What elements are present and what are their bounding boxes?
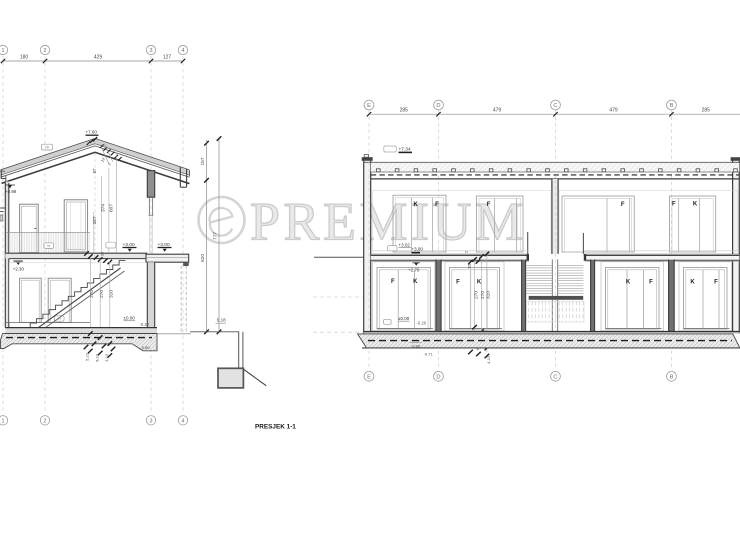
svg-text:285: 285	[702, 108, 711, 114]
svg-text:±0.00: ±0.00	[124, 315, 136, 320]
svg-text:287: 287	[92, 216, 98, 224]
svg-text:270: 270	[89, 290, 95, 298]
svg-text:K: K	[413, 279, 418, 285]
svg-text:F: F	[672, 202, 676, 208]
svg-text:+2.30: +2.30	[13, 266, 25, 271]
svg-text:PREMIUM: PREMIUM	[250, 192, 527, 252]
svg-text:777: 777	[213, 232, 219, 240]
svg-text:+7.60: +7.60	[86, 130, 98, 135]
svg-text:32: 32	[100, 251, 105, 256]
svg-text:270: 270	[99, 290, 105, 298]
svg-text:20: 20	[467, 264, 472, 269]
svg-text:1: 1	[1, 418, 4, 424]
svg-text:+4.98: +4.98	[5, 189, 17, 194]
svg-text:4,10: 4,10	[487, 356, 491, 363]
svg-text:F: F	[714, 280, 718, 286]
svg-text:C: C	[553, 374, 557, 380]
svg-text:K: K	[414, 202, 419, 208]
svg-text:+3.02: +3.02	[399, 242, 411, 247]
svg-text:B: B	[670, 103, 674, 109]
svg-text:-0.20: -0.20	[417, 320, 427, 325]
svg-text:429: 429	[94, 55, 103, 61]
svg-text:M: M	[47, 244, 50, 248]
svg-text:-0.20: -0.20	[140, 322, 150, 327]
svg-text:127: 127	[163, 55, 172, 61]
svg-text:270: 270	[480, 291, 486, 299]
svg-text:+3.00: +3.00	[412, 247, 424, 252]
svg-text:K: K	[477, 280, 482, 286]
svg-text:4,10: 4,10	[105, 354, 109, 361]
svg-text:374: 374	[101, 204, 107, 212]
svg-text:F: F	[391, 279, 395, 285]
svg-text:310: 310	[109, 290, 115, 298]
svg-text:+2.70: +2.70	[408, 268, 420, 273]
svg-text:F: F	[487, 202, 491, 208]
svg-text:F: F	[649, 280, 653, 286]
svg-text:310: 310	[486, 291, 492, 299]
svg-text:K: K	[626, 280, 631, 286]
svg-text:PRESJEK 1-1: PRESJEK 1-1	[255, 424, 296, 431]
svg-text:3: 3	[149, 48, 152, 54]
svg-text:C: C	[553, 103, 557, 109]
svg-text:180: 180	[20, 55, 29, 61]
svg-text:B: B	[670, 374, 674, 380]
svg-text:-0.60: -0.60	[141, 345, 151, 350]
svg-text:0.18: 0.18	[217, 318, 226, 323]
svg-text:±0.00: ±0.00	[398, 316, 410, 321]
svg-text:2: 2	[43, 418, 46, 424]
svg-text:K: K	[693, 202, 698, 208]
svg-text:270: 270	[473, 291, 479, 299]
svg-text:285: 285	[400, 108, 409, 114]
svg-text:5,10: 5,10	[86, 353, 90, 360]
svg-text:1: 1	[1, 48, 4, 54]
svg-text:3: 3	[149, 418, 152, 424]
svg-text:620: 620	[200, 254, 206, 262]
svg-text:F: F	[435, 202, 439, 208]
svg-text:479: 479	[493, 108, 502, 114]
svg-text:157: 157	[200, 157, 206, 165]
svg-text:479: 479	[609, 108, 618, 114]
svg-text:F: F	[456, 280, 460, 286]
svg-text:E: E	[367, 103, 371, 109]
svg-text:607: 607	[108, 204, 114, 212]
svg-text:2K: 2K	[45, 145, 50, 150]
svg-text:6,10: 6,10	[96, 354, 100, 361]
svg-text:F: F	[621, 202, 625, 208]
svg-text:D: D	[436, 103, 440, 109]
svg-text:2: 2	[43, 48, 46, 54]
svg-text:D: D	[436, 374, 440, 380]
svg-text:87: 87	[92, 168, 97, 173]
svg-text:E: E	[367, 374, 371, 380]
svg-text:K: K	[690, 280, 695, 286]
svg-text:-0.60: -0.60	[411, 343, 421, 348]
svg-text:-0.71: -0.71	[424, 351, 434, 356]
